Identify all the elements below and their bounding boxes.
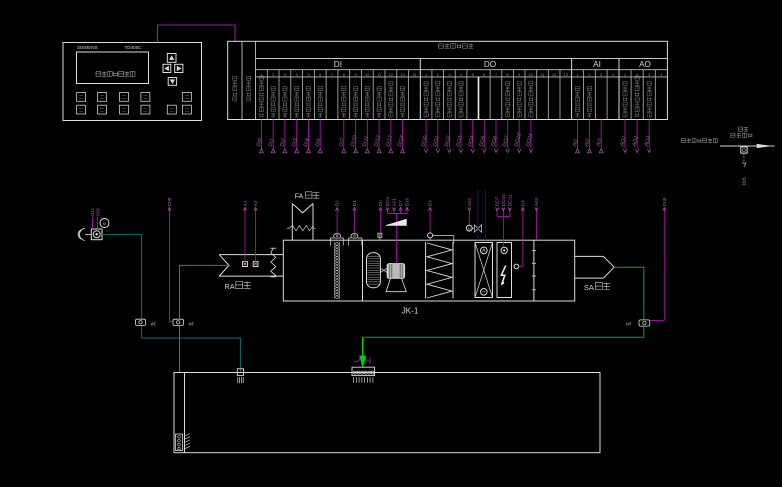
svg-text:A1: A1 [243, 200, 248, 206]
svg-text:9: 9 [518, 73, 520, 77]
svg-text:SA: SA [584, 283, 594, 292]
svg-text:14: 14 [412, 73, 416, 77]
svg-text:D1: D1 [352, 200, 357, 206]
svg-text:RA: RA [224, 282, 234, 291]
svg-text:2: 2 [437, 73, 439, 77]
svg-text:11: 11 [377, 73, 381, 77]
svg-text:A2: A2 [253, 200, 258, 206]
svg-text:D7: D7 [398, 200, 403, 206]
svg-text:8: 8 [343, 73, 345, 77]
svg-text:D05: D05 [662, 197, 667, 206]
svg-text:3: 3 [448, 73, 450, 77]
svg-text:D08: D08 [167, 197, 172, 206]
svg-text:JK-1: JK-1 [402, 307, 419, 316]
svg-text:D4: D4 [520, 200, 525, 206]
svg-text:A02: A02 [467, 198, 472, 207]
svg-text:DO7: DO7 [495, 196, 500, 206]
svg-text:1: 1 [576, 73, 578, 77]
svg-text:D14: D14 [90, 207, 95, 215]
svg-text:DO: DO [484, 60, 496, 69]
svg-text:7: 7 [495, 73, 497, 77]
svg-text:FA: FA [295, 193, 304, 200]
svg-text:3: 3 [648, 73, 650, 77]
svg-text:10: 10 [529, 73, 533, 77]
svg-text:3: 3 [600, 73, 602, 77]
svg-text:DI: DI [334, 60, 342, 69]
svg-text:wt: wt [189, 322, 195, 328]
svg-text:1: 1 [425, 73, 427, 77]
svg-text:D3: D3 [428, 200, 433, 206]
svg-text:9: 9 [355, 73, 357, 77]
svg-text:10: 10 [365, 73, 369, 77]
svg-text:DO10: DO10 [501, 194, 506, 207]
svg-text:4: 4 [296, 73, 298, 77]
svg-text:6: 6 [483, 73, 485, 77]
svg-text:1: 1 [624, 73, 626, 77]
svg-text:12: 12 [552, 73, 556, 77]
svg-text:13: 13 [400, 73, 404, 77]
svg-text:2: 2 [272, 73, 274, 77]
svg-text:3: 3 [284, 73, 286, 77]
svg-text:8: 8 [507, 73, 509, 77]
svg-text:D15: D15 [742, 177, 747, 186]
svg-text:2: 2 [636, 73, 638, 77]
svg-text:D10: D10 [405, 197, 410, 206]
svg-text:12: 12 [389, 73, 393, 77]
svg-text:5: 5 [307, 73, 309, 77]
svg-text:SIEMENS: SIEMENS [77, 45, 98, 50]
svg-text:wt: wt [626, 321, 632, 327]
svg-text:5: 5 [472, 73, 474, 77]
svg-text:A01: A01 [392, 198, 397, 207]
svg-text:AO: AO [639, 60, 651, 69]
svg-text:wt: wt [151, 322, 157, 328]
svg-text:DO11: DO11 [507, 194, 512, 206]
svg-text:11: 11 [541, 73, 545, 77]
svg-text:7: 7 [331, 73, 333, 77]
svg-text:M: M [468, 227, 471, 231]
svg-text:A03: A03 [534, 198, 539, 207]
svg-text:1: 1 [260, 73, 262, 77]
svg-text:D0: D0 [378, 200, 383, 206]
svg-text:4: 4 [660, 73, 662, 77]
svg-text:13: 13 [564, 73, 568, 77]
svg-text:6: 6 [319, 73, 321, 77]
svg-text:4: 4 [612, 73, 614, 77]
svg-text:AI: AI [593, 60, 601, 69]
svg-text:4: 4 [460, 73, 462, 77]
svg-text:D2: D2 [335, 200, 340, 206]
svg-text:DO1: DO1 [385, 196, 390, 206]
svg-text:2: 2 [588, 73, 590, 77]
svg-text:D05: D05 [95, 207, 100, 215]
svg-text:TD400C: TD400C [125, 45, 143, 50]
svg-text:M: M [103, 222, 106, 226]
